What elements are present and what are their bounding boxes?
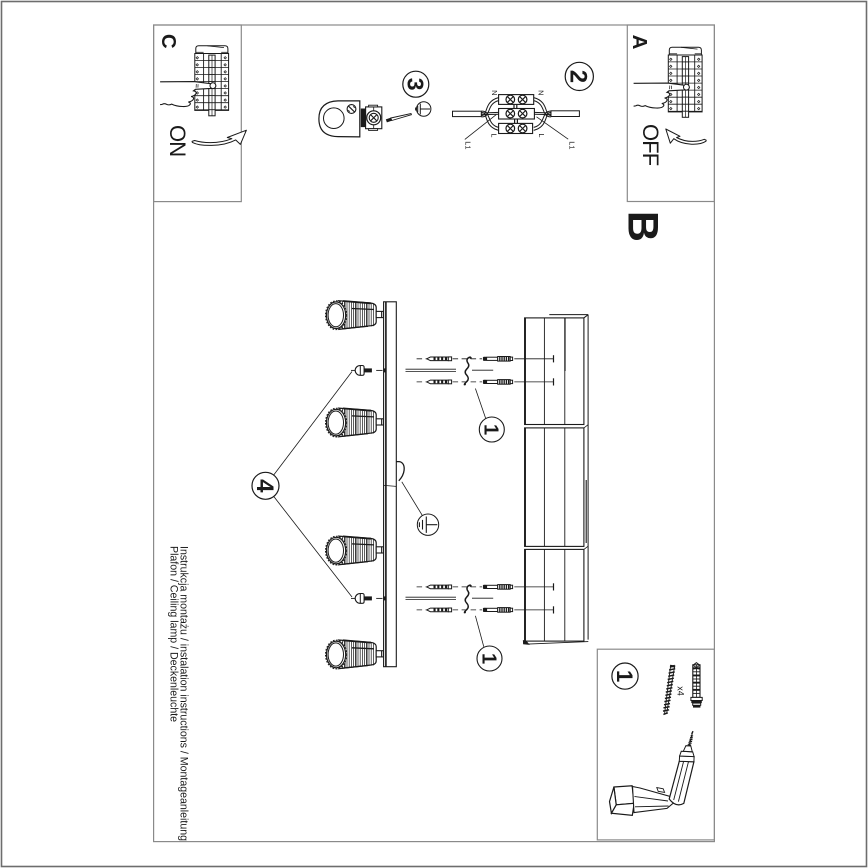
svg-text:OFF: OFF (638, 124, 663, 166)
svg-text:Plafon / Ceiling lamp / Decken: Plafon / Ceiling lamp / Deckenleuchte (167, 546, 179, 722)
svg-text:N: N (490, 90, 499, 95)
svg-text:1: 1 (612, 670, 637, 682)
svg-text:1: 1 (480, 424, 502, 435)
svg-text:A: A (628, 35, 651, 50)
svg-text:2: 2 (565, 70, 592, 83)
svg-text:1: 1 (477, 653, 499, 664)
svg-text:4: 4 (251, 479, 278, 493)
svg-text:N: N (537, 90, 546, 95)
svg-text:L1: L1 (567, 141, 576, 149)
svg-text:L: L (489, 133, 498, 137)
svg-text:ON: ON (165, 125, 190, 156)
svg-text:C: C (157, 34, 180, 49)
svg-text:L1: L1 (464, 141, 473, 149)
svg-text:x4: x4 (675, 686, 685, 696)
svg-text:B: B (619, 211, 667, 242)
svg-text:L: L (537, 133, 546, 137)
svg-text:3: 3 (403, 78, 429, 91)
